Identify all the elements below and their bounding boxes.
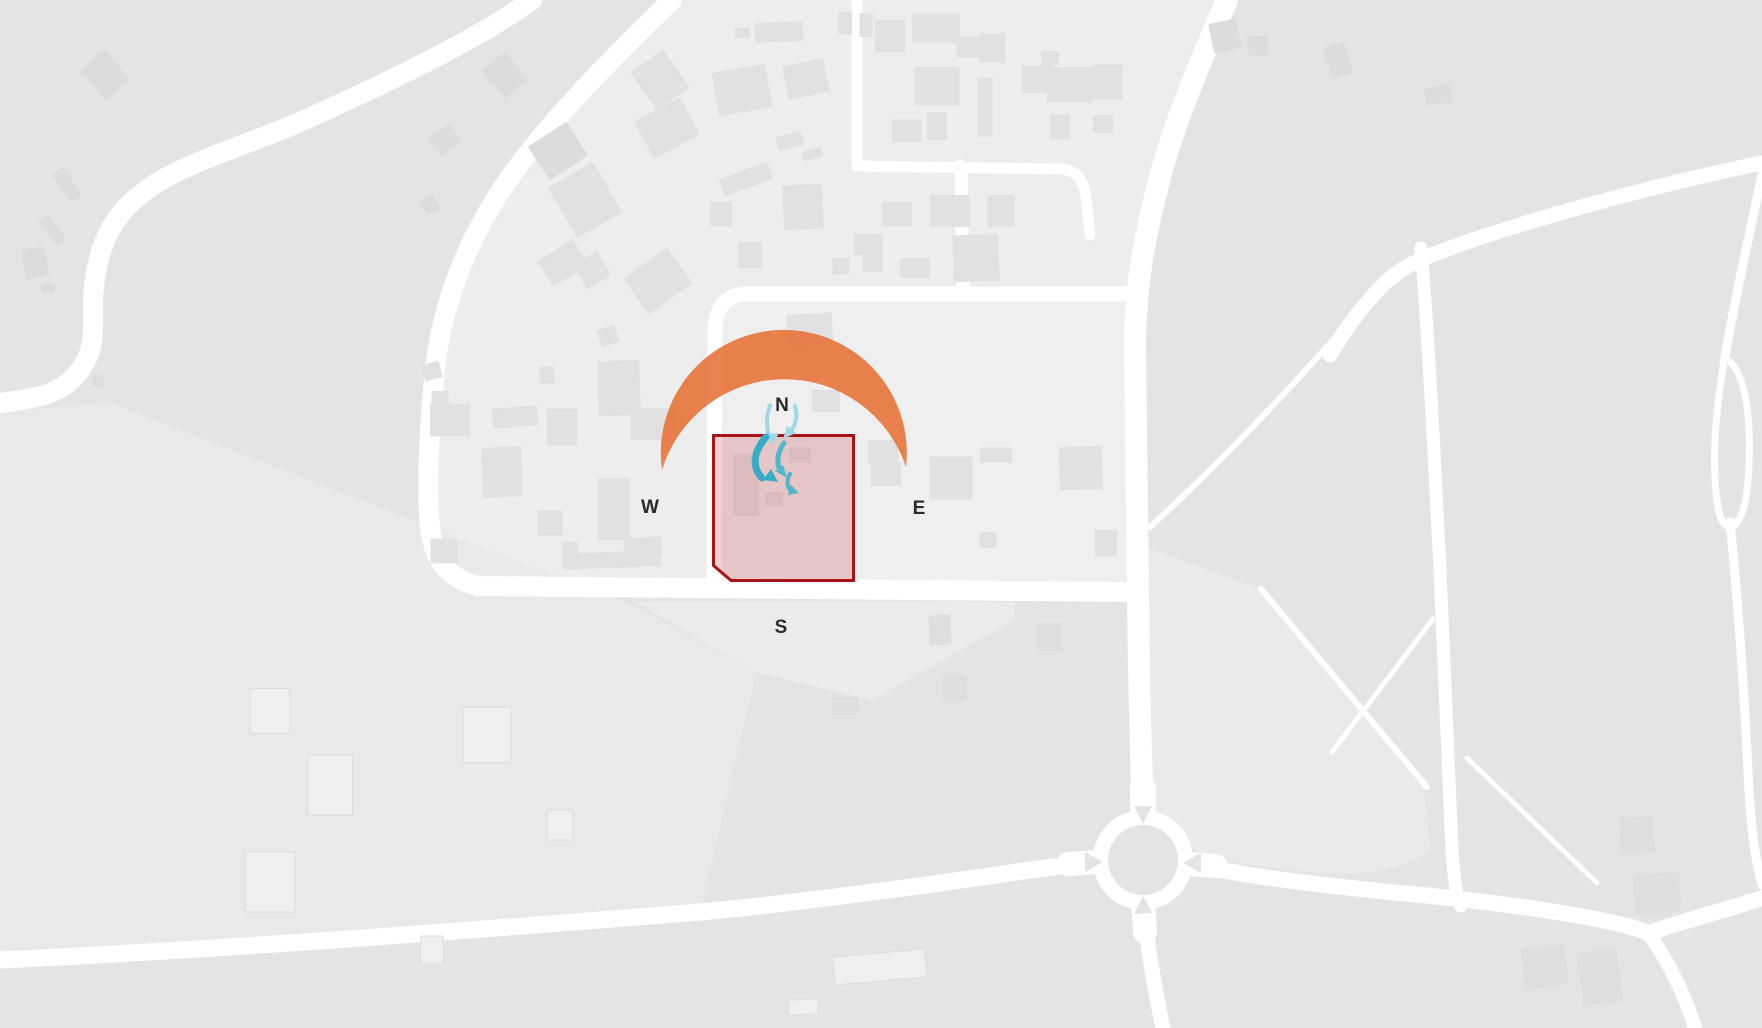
building-footprint	[979, 33, 1005, 63]
building-footprint	[738, 242, 762, 268]
building-footprint	[854, 233, 872, 255]
building-footprint	[875, 20, 905, 53]
building-footprint	[492, 405, 539, 429]
site-analysis-map: NWES	[0, 0, 1762, 1028]
building-footprint	[710, 202, 732, 227]
building-footprint	[980, 532, 997, 548]
building-footprint	[928, 614, 952, 645]
building-footprint	[1038, 623, 1062, 651]
building-footprint	[930, 457, 973, 500]
building-footprint	[882, 202, 912, 227]
map-svg: NWES	[0, 0, 1762, 1028]
building-footprint	[93, 375, 104, 387]
roundabout-island	[1108, 825, 1178, 895]
building-footprint	[1093, 115, 1113, 133]
building-footprint	[1247, 35, 1269, 57]
building-footprint	[1323, 41, 1354, 78]
building-footprint	[735, 28, 750, 38]
building-footprint	[482, 52, 528, 99]
building-footprint	[1059, 446, 1103, 490]
building-footprint	[1633, 872, 1681, 914]
building-footprint	[812, 390, 840, 412]
building-footprint	[1577, 948, 1624, 1006]
building-footprint	[988, 195, 1015, 227]
building-footprint	[1619, 816, 1655, 854]
building-footprint	[431, 539, 458, 564]
building-footprint	[308, 755, 353, 815]
rd-right-top	[1724, 175, 1762, 362]
building-footprint	[957, 37, 980, 58]
building-footprint	[21, 246, 50, 280]
rd-right-lens	[1715, 361, 1750, 527]
building-footprint	[980, 448, 1012, 463]
building-footprint	[537, 511, 563, 536]
building-footprint	[428, 124, 462, 157]
site-boundary-layer	[714, 436, 854, 581]
building-footprint	[419, 194, 440, 216]
compass-label-e: E	[913, 498, 926, 519]
building-footprint	[42, 285, 54, 294]
region-field-east	[1148, 548, 1430, 874]
building-footprint	[833, 949, 927, 985]
building-footprint	[430, 404, 470, 437]
building-footprint	[80, 49, 130, 100]
building-footprint	[52, 167, 83, 203]
building-footprint	[900, 258, 930, 278]
building-footprint	[788, 999, 819, 1016]
rd-ne-branch	[1421, 248, 1461, 906]
building-footprint	[463, 708, 511, 763]
building-footprint	[832, 697, 858, 715]
building-footprint	[943, 675, 967, 701]
building-footprint	[1095, 530, 1117, 557]
building-footprint	[860, 13, 873, 37]
building-footprint	[912, 13, 960, 43]
building-footprint	[833, 258, 850, 275]
building-footprint	[547, 810, 573, 840]
footpath-1	[1150, 288, 1378, 527]
building-footprint	[1050, 115, 1070, 140]
rd-right-stem	[1730, 522, 1762, 885]
building-footprint	[597, 360, 641, 416]
footpath-4	[1467, 758, 1597, 883]
building-footprint	[952, 234, 1000, 283]
building-footprint	[547, 409, 577, 446]
building-footprint	[1520, 944, 1569, 990]
building-footprint	[245, 852, 295, 912]
building-footprint	[1041, 51, 1059, 65]
building-footprint	[432, 391, 449, 405]
rd-ne-diagonal	[1330, 163, 1762, 355]
building-footprint	[598, 478, 630, 540]
building-footprint	[481, 446, 523, 497]
building-footprint	[540, 367, 555, 384]
building-footprint	[892, 120, 922, 143]
building-footprint	[1092, 65, 1123, 100]
building-footprint	[782, 183, 824, 230]
site-boundary	[714, 436, 854, 581]
building-footprint	[1047, 67, 1093, 103]
building-footprint	[1424, 84, 1452, 105]
building-footprint	[250, 689, 290, 734]
rd-se-branch	[1648, 933, 1695, 1028]
building-footprint	[421, 936, 443, 964]
building-footprint	[624, 536, 663, 557]
building-footprint	[978, 78, 993, 137]
compass-label-w: W	[641, 497, 659, 518]
building-footprint	[915, 67, 960, 105]
building-footprint	[868, 440, 898, 464]
building-footprint	[838, 12, 852, 35]
building-footprint	[930, 195, 970, 227]
compass-label-n: N	[775, 395, 789, 416]
building-footprint	[871, 462, 901, 486]
building-footprint	[927, 112, 947, 140]
building-footprint	[712, 64, 773, 117]
compass-label-s: S	[775, 617, 788, 638]
building-footprint	[755, 21, 804, 43]
building-footprint	[38, 214, 66, 245]
